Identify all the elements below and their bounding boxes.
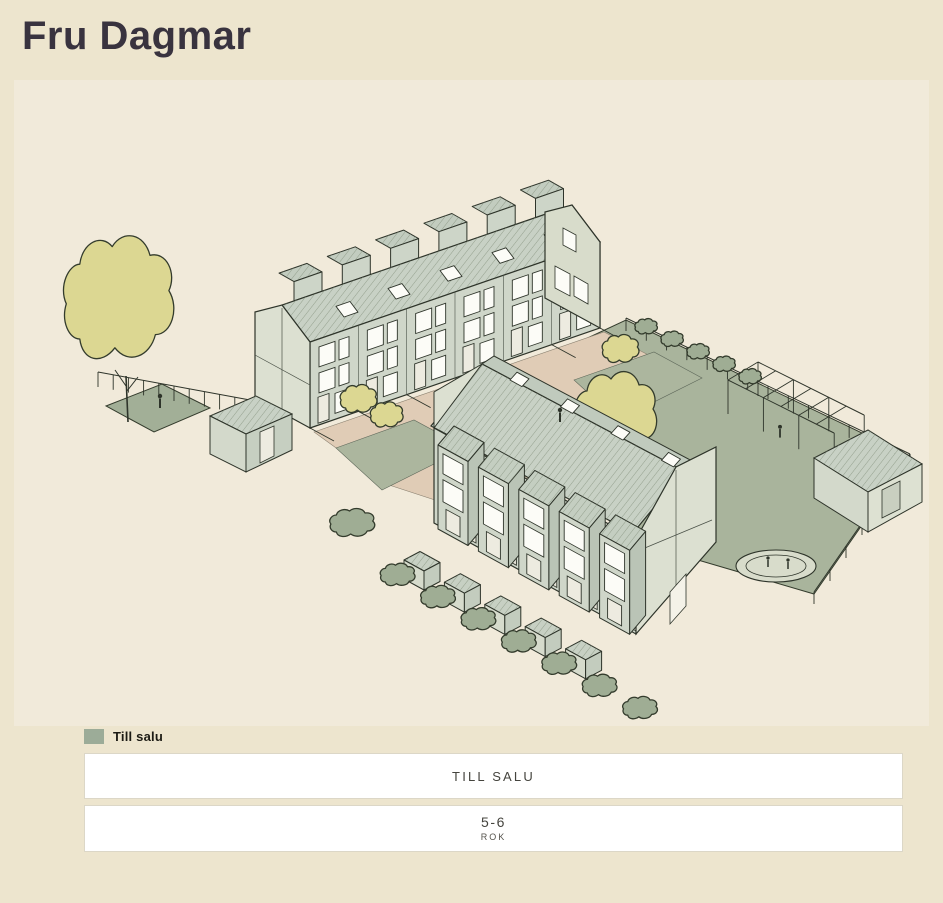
site-plan[interactable] — [14, 80, 929, 726]
legend-swatch-till-salu — [84, 729, 104, 744]
page-title: Fru Dagmar — [22, 14, 252, 59]
filter-rooms-button[interactable]: 5-6 ROK — [84, 805, 903, 852]
rooms-unit: ROK — [481, 832, 507, 842]
legend: Till salu — [84, 728, 163, 745]
page-header: Fru Dagmar — [0, 0, 943, 80]
legend-label: Till salu — [113, 729, 163, 744]
filter-till-salu-button[interactable]: TILL SALU — [84, 753, 903, 799]
rooms-value: 5-6 — [481, 815, 506, 830]
trampoline — [736, 550, 816, 582]
